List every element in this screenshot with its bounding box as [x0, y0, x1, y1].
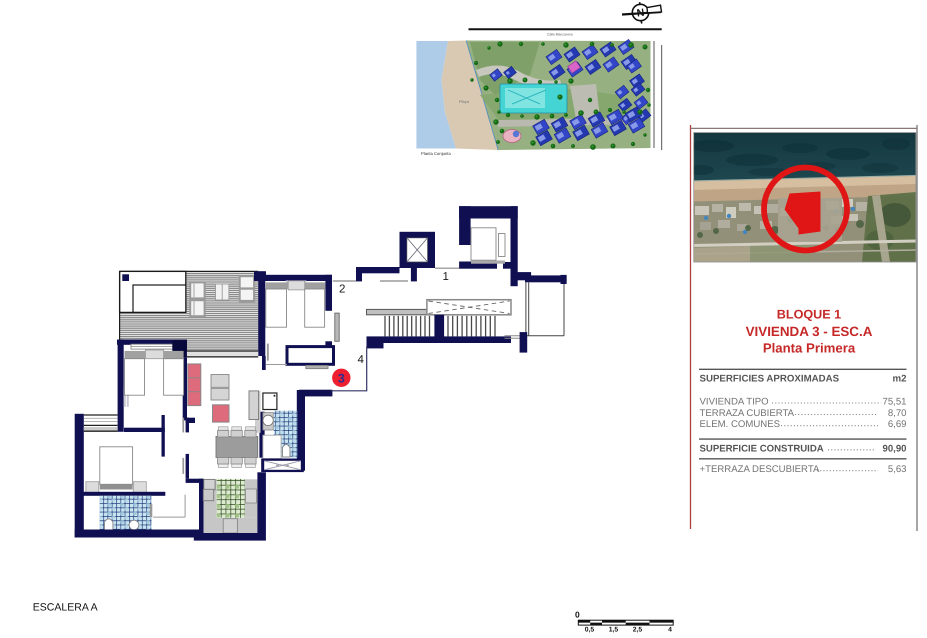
svg-text:Calle Manzanera: Calle Manzanera [547, 33, 573, 37]
svg-text:Planta Primera: Planta Primera [763, 341, 856, 356]
svg-text:VIVIENDA TIPO: VIVIENDA TIPO [700, 397, 769, 408]
svg-text:VIVIENDA 3 - ESC.A: VIVIENDA 3 - ESC.A [746, 324, 873, 339]
svg-text:1,5: 1,5 [609, 627, 619, 634]
svg-text:N: N [636, 7, 645, 20]
svg-text:SUPERFICIES APROXIMADAS: SUPERFICIES APROXIMADAS [700, 373, 840, 384]
svg-text:8,70: 8,70 [888, 408, 907, 419]
svg-text:90,90: 90,90 [882, 443, 906, 454]
svg-text:ESCALERA A: ESCALERA A [33, 602, 98, 614]
svg-text:+TERRAZA DESCUBIERTA: +TERRAZA DESCUBIERTA [700, 464, 820, 475]
svg-text:5,63: 5,63 [888, 464, 907, 475]
svg-text:m2: m2 [892, 373, 906, 384]
svg-text:SUPERFICIE CONSTRUIDA: SUPERFICIE CONSTRUIDA [700, 443, 824, 454]
svg-text:3: 3 [338, 371, 345, 385]
svg-text:Planta Conjunto: Planta Conjunto [421, 151, 451, 156]
svg-text:BLOQUE 1: BLOQUE 1 [777, 308, 841, 322]
svg-text:2,5: 2,5 [633, 627, 643, 634]
svg-text:4: 4 [668, 627, 672, 634]
svg-text:4: 4 [358, 354, 365, 366]
svg-text:0: 0 [575, 610, 580, 620]
svg-text:2: 2 [339, 284, 345, 296]
svg-text:ELEM. COMUNES: ELEM. COMUNES [700, 419, 781, 430]
svg-text:1: 1 [443, 271, 449, 283]
svg-text:75,51: 75,51 [882, 397, 906, 408]
svg-text:0,5: 0,5 [585, 627, 595, 634]
svg-text:TERRAZA CUBIERTA: TERRAZA CUBIERTA [700, 408, 795, 419]
svg-text:Playa: Playa [459, 99, 470, 104]
svg-text:6,69: 6,69 [888, 419, 907, 430]
